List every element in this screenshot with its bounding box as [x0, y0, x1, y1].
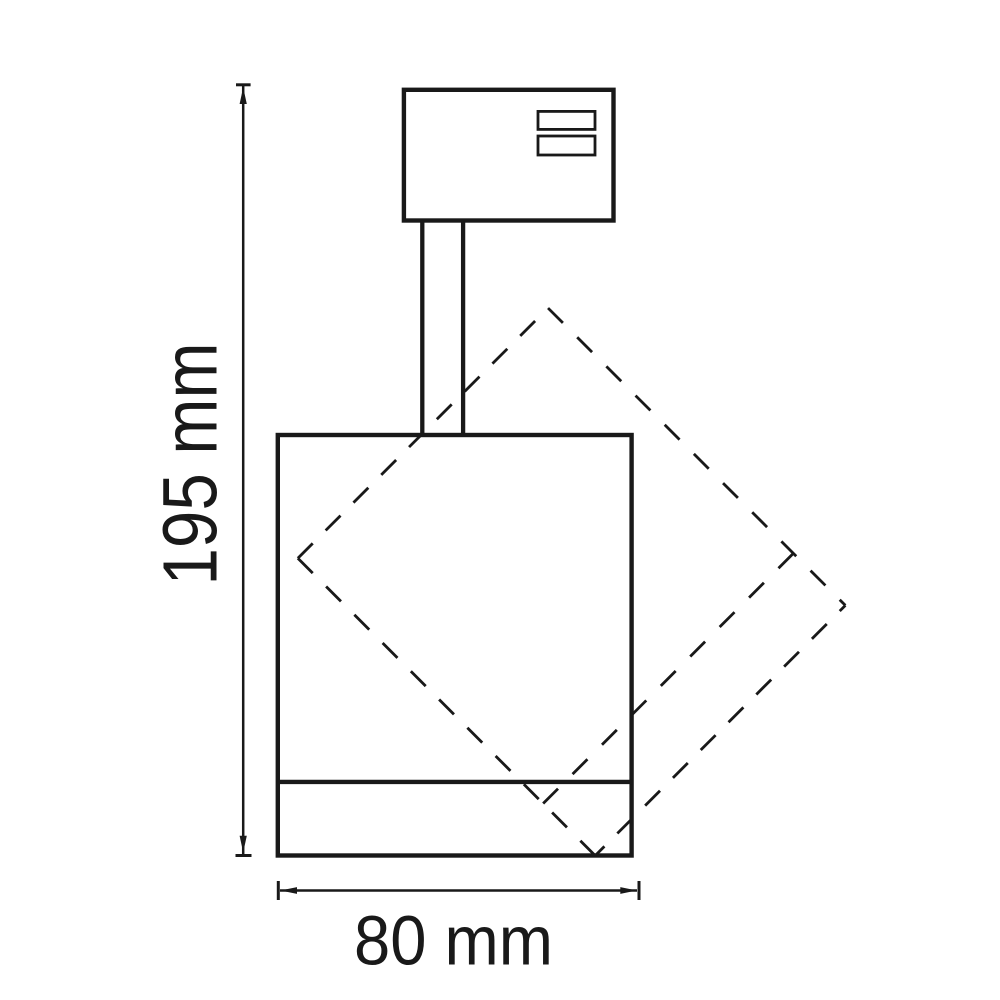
svg-text:195 mm: 195 mm [148, 343, 234, 586]
svg-text:80 mm: 80 mm [354, 902, 553, 980]
